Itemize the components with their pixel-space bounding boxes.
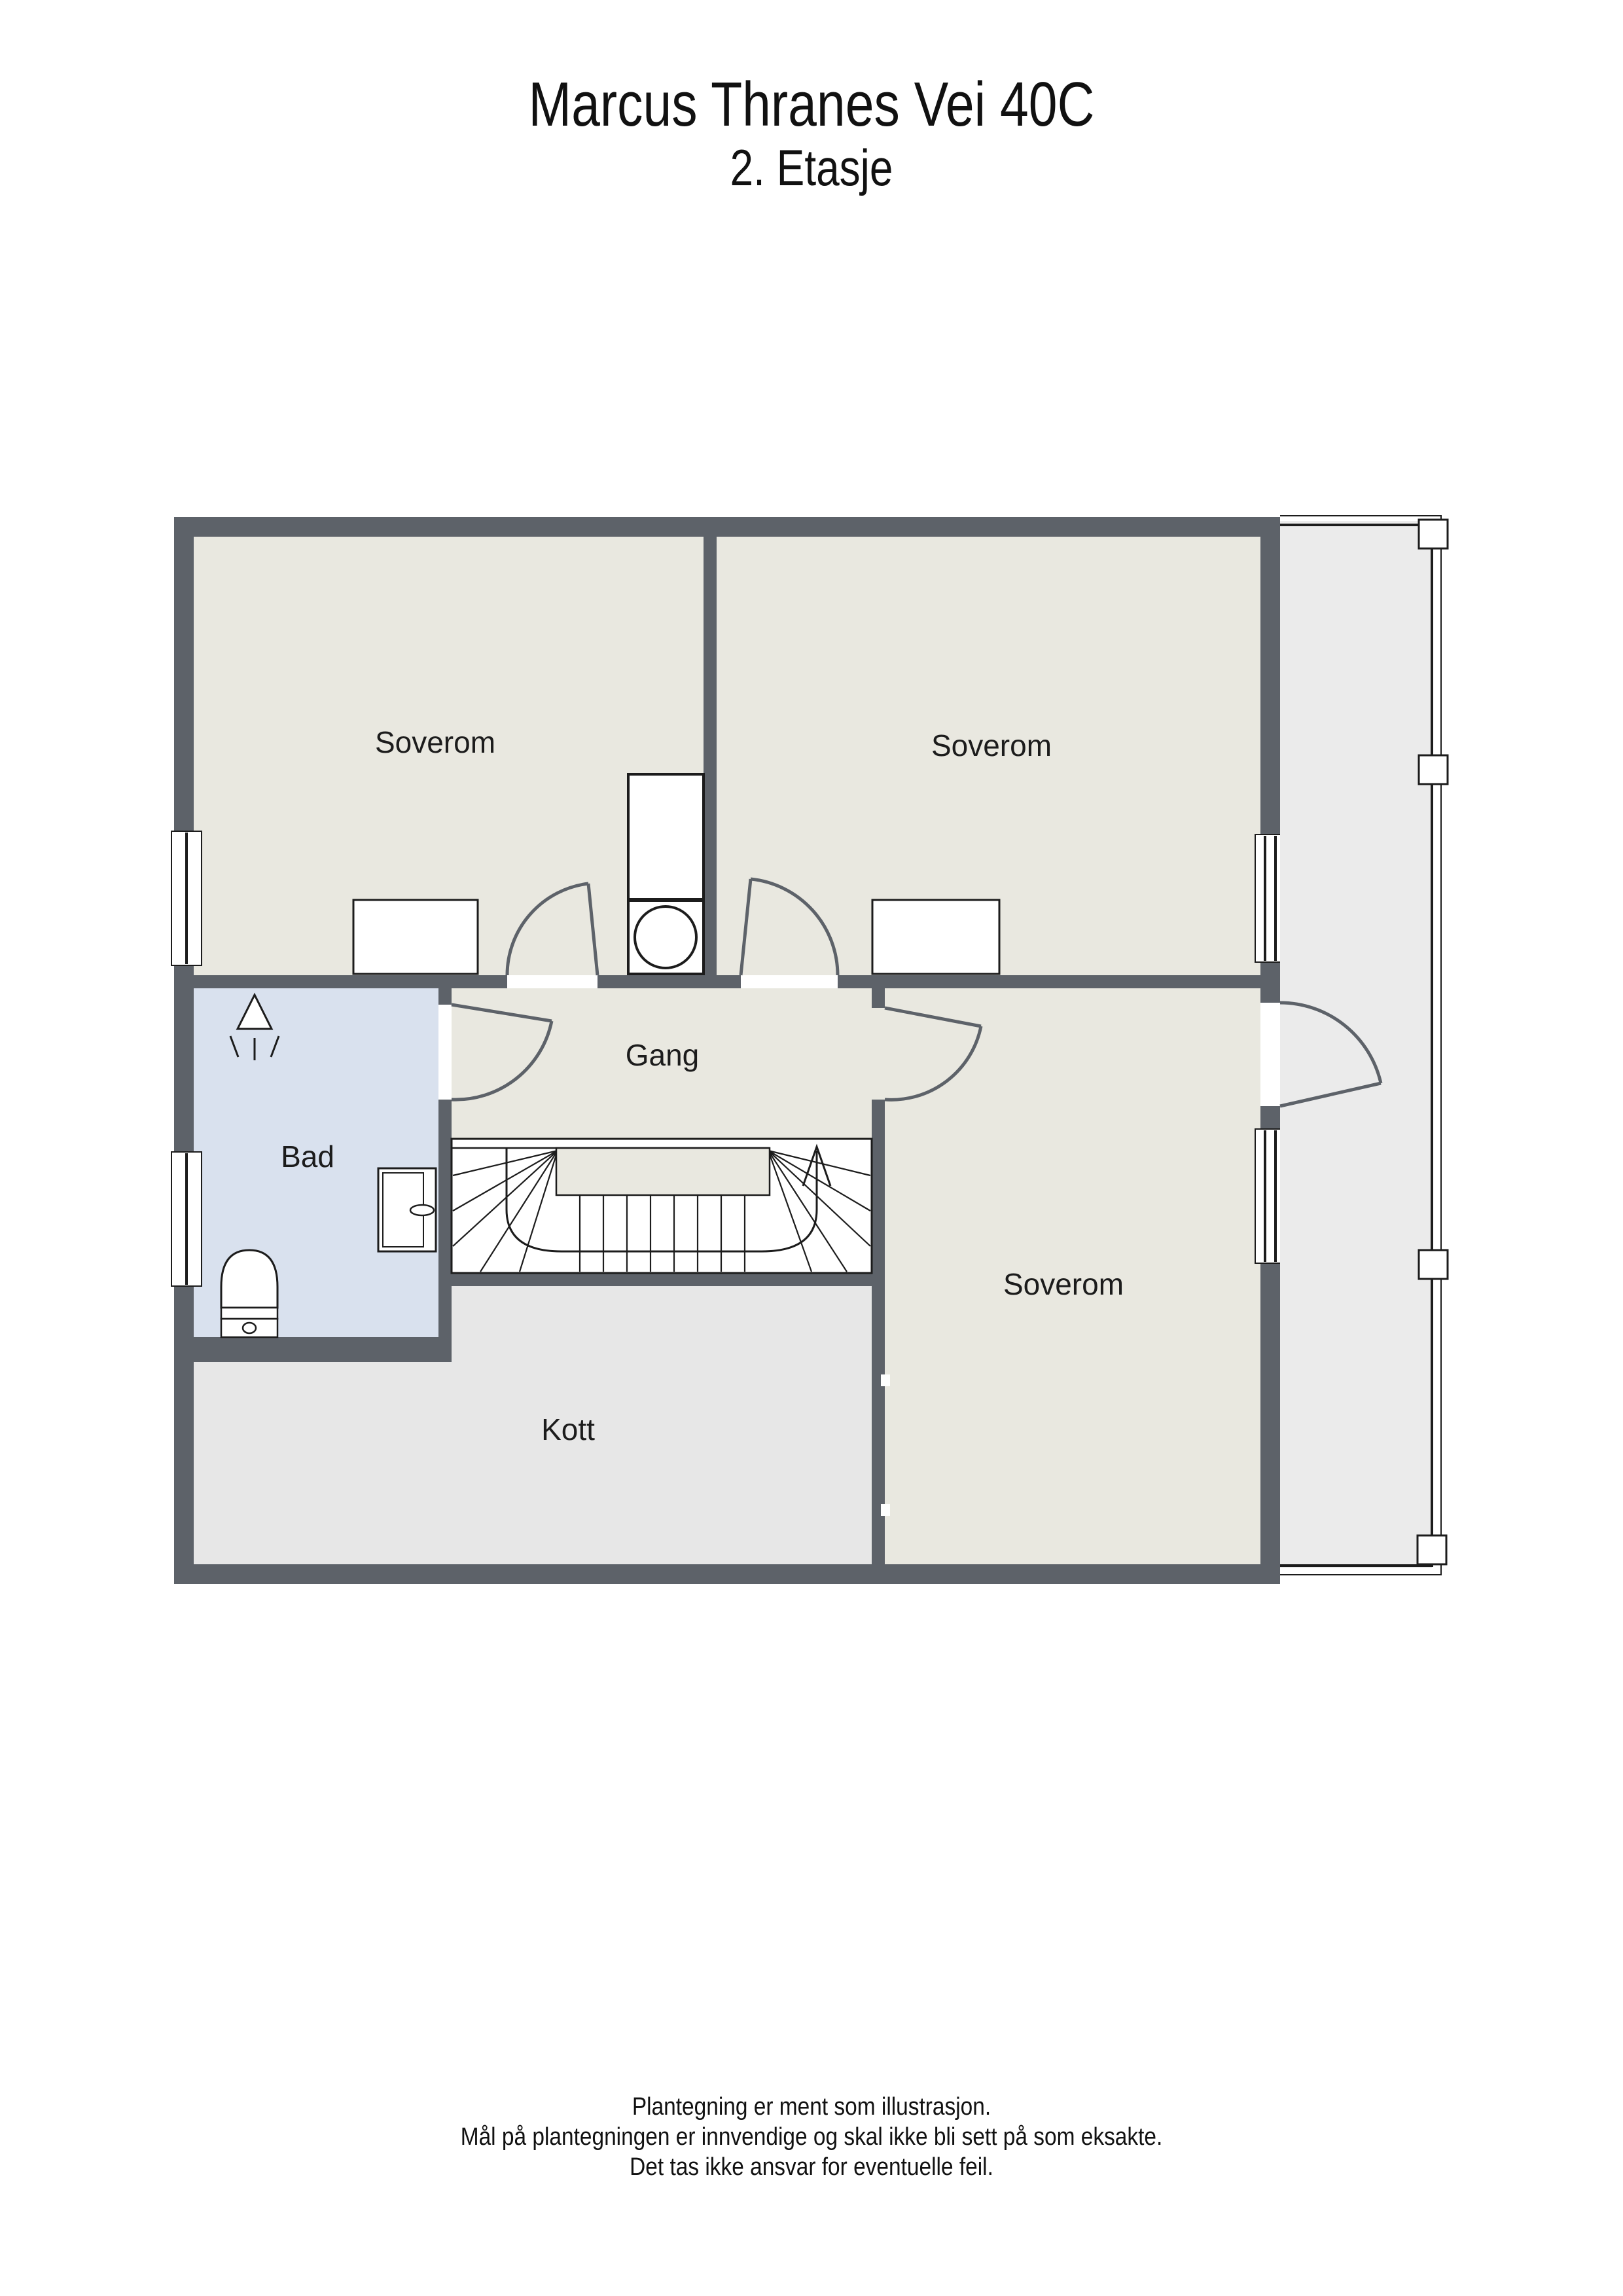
toilet-icon bbox=[221, 1250, 277, 1337]
doorway-bedroom-top-right bbox=[741, 975, 838, 988]
doorway-balcony bbox=[1260, 1003, 1280, 1106]
dresser bbox=[353, 900, 478, 974]
wall-exterior-bottom bbox=[174, 1564, 1280, 1584]
sink-icon bbox=[378, 1168, 436, 1251]
stairs-landing bbox=[556, 1148, 770, 1195]
railing-post bbox=[1418, 1535, 1446, 1564]
room-label-bedroom-bottom: Soverom bbox=[1003, 1267, 1124, 1301]
wall-closet-bedroom bbox=[872, 1286, 885, 1564]
window-icon bbox=[171, 831, 202, 965]
balcony-floor bbox=[1280, 521, 1432, 1568]
wall-exterior-top bbox=[174, 517, 1280, 537]
railing-post bbox=[1419, 520, 1448, 548]
disclaimer-line-1: Plantegning er ment som illustrasjon. bbox=[98, 2092, 1525, 2122]
wall-joint-tick bbox=[881, 1374, 890, 1386]
staircase bbox=[452, 1139, 872, 1273]
room-label-bedroom-top-left: Soverom bbox=[375, 725, 495, 759]
floor-plan: Soverom Soverom Gang Soverom Bad Kott bbox=[0, 0, 1623, 2296]
doorway-bedroom-top-left bbox=[507, 975, 597, 988]
window-icon bbox=[171, 1152, 202, 1286]
wall-bedroom-divider bbox=[704, 537, 717, 975]
room-label-hallway: Gang bbox=[626, 1038, 700, 1072]
wall-exterior-left bbox=[174, 517, 194, 1584]
wall-under-stairs bbox=[452, 1273, 885, 1286]
railing-post bbox=[1419, 755, 1448, 784]
room-label-bathroom: Bad bbox=[281, 1139, 334, 1174]
washer-tower-icon bbox=[628, 774, 704, 974]
disclaimer: Plantegning er ment som illustrasjon. Må… bbox=[0, 2092, 1623, 2182]
doorway-bathroom bbox=[438, 1005, 452, 1100]
dresser bbox=[872, 900, 999, 974]
page: Marcus Thranes Vei 40C 2. Etasje bbox=[0, 0, 1623, 2296]
room-label-closet: Kott bbox=[541, 1412, 595, 1446]
railing-post bbox=[1419, 1250, 1448, 1279]
wall-bathroom-bottom bbox=[174, 1337, 452, 1362]
room-label-bedroom-top-right: Soverom bbox=[931, 728, 1052, 762]
wall-joint-tick bbox=[881, 1504, 890, 1516]
wall-hall-bedroom bbox=[872, 1100, 885, 1286]
wall-mid-horizontal bbox=[194, 975, 1260, 988]
wall-hall-bedroom-stub bbox=[872, 988, 885, 1008]
disclaimer-line-3: Det tas ikke ansvar for eventuelle feil. bbox=[98, 2152, 1525, 2182]
room-floors bbox=[194, 537, 1260, 1564]
disclaimer-line-2: Mål på plantegningen er innvendige og sk… bbox=[98, 2122, 1525, 2152]
doorway-bedroom-bottom bbox=[872, 1008, 885, 1100]
